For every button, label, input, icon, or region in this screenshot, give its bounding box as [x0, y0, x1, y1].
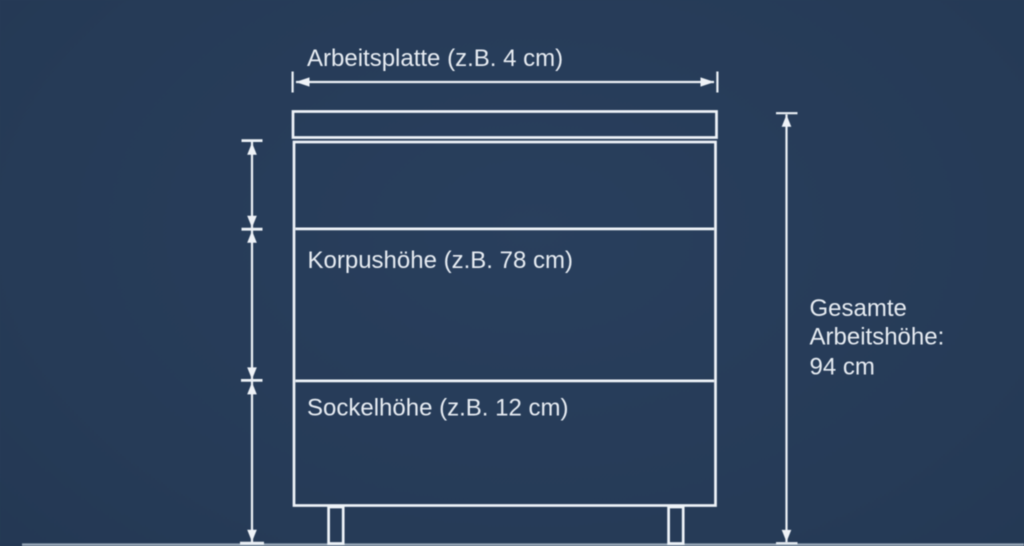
svg-text:94 cm: 94 cm: [810, 353, 875, 380]
svg-text:Sockelhöhe (z.B. 12 cm): Sockelhöhe (z.B. 12 cm): [307, 395, 568, 422]
svg-text:Gesamte: Gesamte: [810, 295, 907, 322]
svg-text:Arbeitsplatte (z.B. 4 cm): Arbeitsplatte (z.B. 4 cm): [307, 45, 563, 72]
svg-text:Arbeitshöhe:: Arbeitshöhe:: [810, 323, 945, 350]
svg-text:Korpushöhe (z.B. 78 cm): Korpushöhe (z.B. 78 cm): [308, 247, 573, 274]
